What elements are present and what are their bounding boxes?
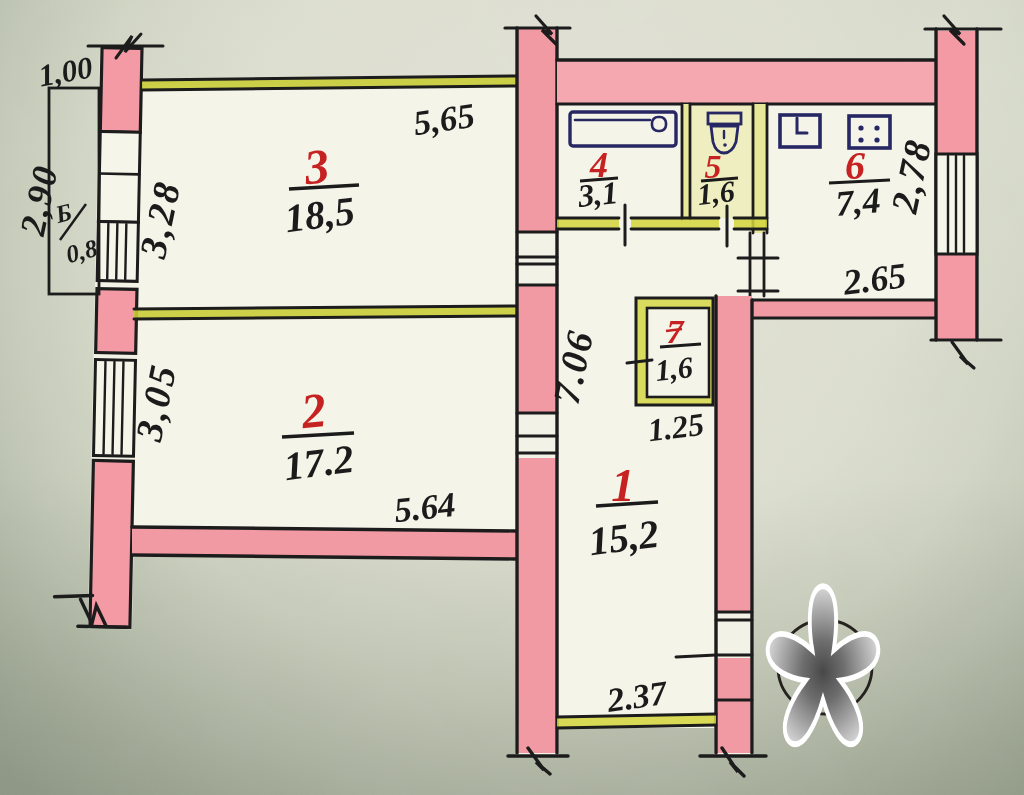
svg-text:18,5: 18,5	[282, 188, 357, 241]
svg-text:1,6: 1,6	[654, 350, 695, 387]
svg-text:3,1: 3,1	[575, 174, 620, 214]
svg-text:17.2: 17.2	[281, 436, 356, 489]
svg-text:1.25: 1.25	[646, 406, 706, 449]
svg-text:2.65: 2.65	[840, 255, 908, 303]
svg-text:1,6: 1,6	[696, 174, 737, 211]
svg-text:5.64: 5.64	[392, 485, 457, 530]
svg-text:7,4: 7,4	[834, 180, 882, 224]
svg-text:15,2: 15,2	[586, 511, 661, 564]
